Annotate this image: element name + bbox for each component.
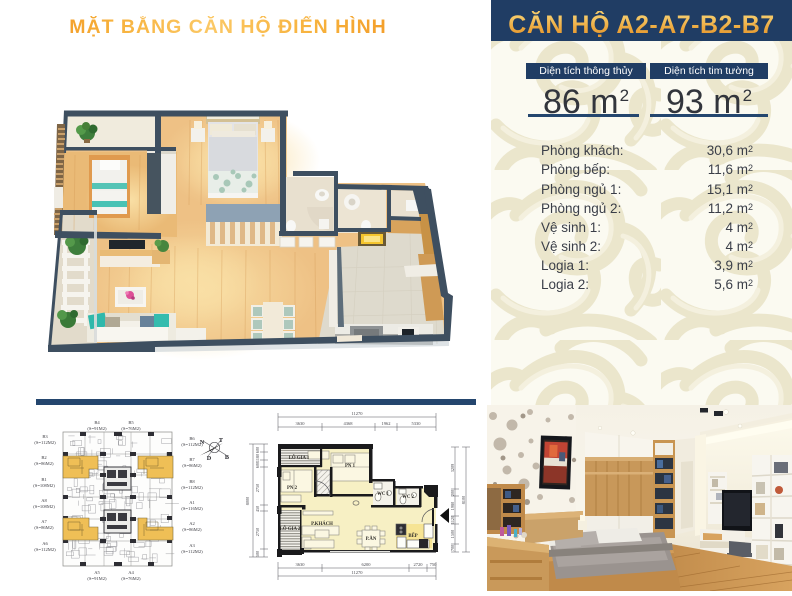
svg-text:(S=91M2): (S=91M2) (87, 576, 107, 581)
svg-text:(S=112M2): (S=112M2) (34, 440, 56, 445)
svg-text:WC 2: WC 2 (402, 495, 414, 500)
svg-text:4368: 4368 (344, 421, 354, 426)
svg-text:(S=86M2): (S=86M2) (182, 527, 202, 532)
svg-text:700: 700 (450, 545, 455, 551)
svg-text:1980: 1980 (450, 502, 455, 510)
svg-text:500: 500 (255, 551, 260, 557)
svg-text:450: 450 (255, 506, 260, 512)
svg-text:B2: B2 (41, 455, 47, 460)
svg-text:B1: B1 (41, 477, 47, 482)
svg-text:1120: 1120 (450, 516, 455, 524)
svg-text:(S=76M2): (S=76M2) (121, 426, 141, 431)
svg-text:600: 600 (255, 447, 260, 453)
svg-text:3630: 3630 (296, 562, 306, 567)
svg-text:A4: A4 (128, 570, 134, 575)
svg-text:(S=108M2): (S=108M2) (33, 504, 55, 509)
svg-text:6200: 6200 (362, 562, 372, 567)
svg-text:LÔ GIA 2: LÔ GIA 2 (280, 526, 301, 532)
svg-text:A3: A3 (189, 543, 195, 548)
svg-text:PN 2: PN 2 (287, 486, 298, 491)
svg-text:(S=76M2): (S=76M2) (121, 576, 141, 581)
svg-text:WC 1: WC 1 (377, 492, 389, 497)
svg-text:8100: 8100 (461, 496, 466, 504)
svg-text:(S=112M2): (S=112M2) (34, 547, 56, 552)
svg-text:2750: 2750 (255, 484, 260, 492)
svg-text:A7: A7 (41, 519, 47, 524)
svg-text:B4: B4 (94, 420, 100, 425)
svg-text:(S=116M2): (S=116M2) (181, 506, 203, 511)
svg-text:750: 750 (430, 562, 438, 567)
svg-text:3209: 3209 (450, 464, 455, 472)
svg-text:P.KHÁCH: P.KHÁCH (311, 521, 333, 527)
svg-text:B8: B8 (189, 479, 195, 484)
svg-text:P.ĂN: P.ĂN (366, 536, 377, 542)
svg-text:B3: B3 (42, 434, 48, 439)
svg-text:200: 200 (450, 490, 455, 496)
svg-text:1962: 1962 (382, 421, 391, 426)
svg-text:2750: 2750 (255, 528, 260, 536)
svg-text:8000: 8000 (245, 497, 250, 505)
svg-text:5330: 5330 (412, 421, 422, 426)
svg-text:BẾP: BẾP (408, 533, 417, 539)
svg-text:11270: 11270 (351, 570, 363, 575)
svg-text:B7: B7 (189, 457, 195, 462)
svg-text:LÔ GIA 1: LÔ GIA 1 (289, 455, 310, 461)
svg-text:B6: B6 (189, 436, 195, 441)
svg-text:(S=112M2): (S=112M2) (181, 485, 203, 490)
svg-text:D: D (207, 455, 212, 462)
svg-text:N: N (200, 439, 205, 446)
svg-text:PN 1: PN 1 (345, 464, 356, 469)
svg-text:3630: 3630 (296, 421, 306, 426)
svg-text:B5: B5 (128, 420, 134, 425)
svg-text:A1: A1 (189, 500, 195, 505)
svg-text:(S=91M2): (S=91M2) (87, 426, 107, 431)
svg-text:(S=108M2): (S=108M2) (33, 483, 55, 488)
svg-text:B: B (225, 454, 229, 461)
svg-text:(S=112M2): (S=112M2) (181, 549, 203, 554)
svg-text:11270: 11270 (351, 411, 363, 416)
svg-text:A2: A2 (189, 521, 195, 526)
svg-text:1180: 1180 (255, 454, 260, 462)
svg-text:T: T (219, 437, 224, 444)
svg-text:(S=86M2): (S=86M2) (182, 463, 202, 468)
svg-text:2720: 2720 (414, 562, 424, 567)
svg-text:600: 600 (255, 462, 260, 468)
svg-text:(S=86M2): (S=86M2) (34, 461, 54, 466)
svg-text:A6: A6 (42, 541, 48, 546)
svg-text:A5: A5 (94, 570, 100, 575)
svg-text:(S=86M2): (S=86M2) (34, 525, 54, 530)
svg-text:1500: 1500 (450, 530, 455, 538)
svg-text:A8: A8 (41, 498, 47, 503)
